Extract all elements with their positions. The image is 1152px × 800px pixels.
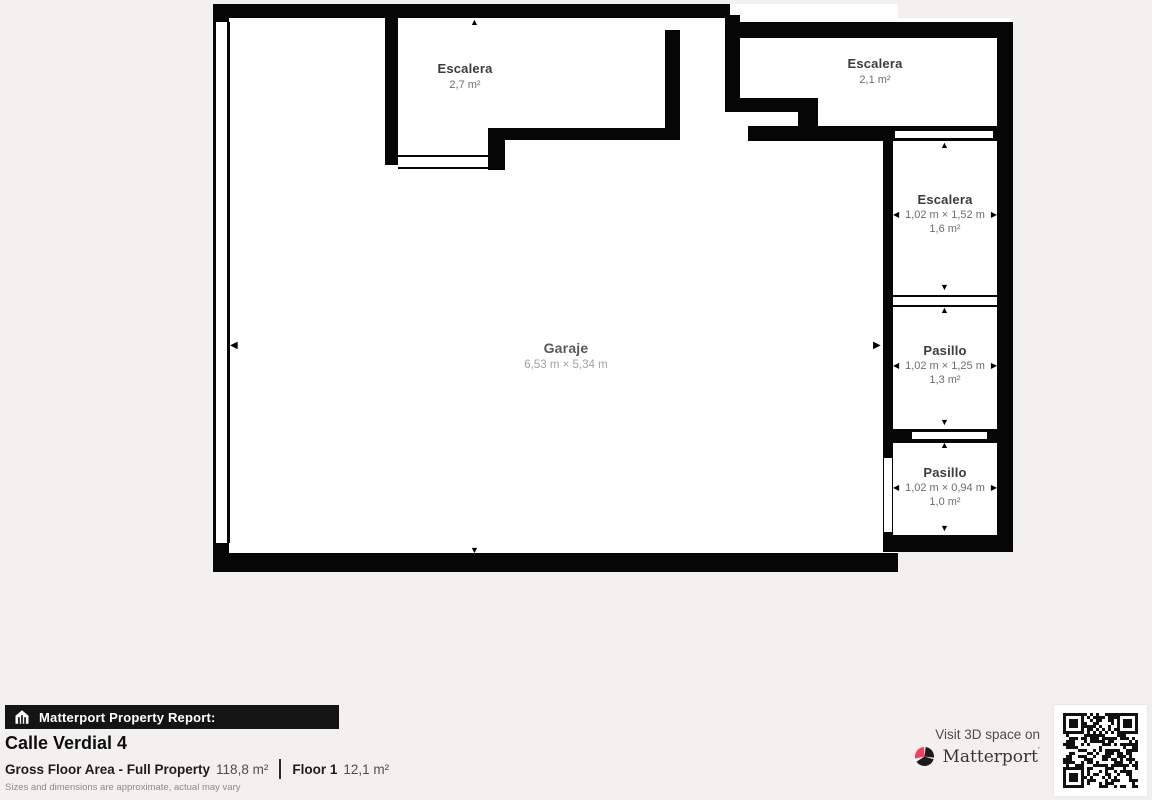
door-escalera-topleft <box>398 155 488 169</box>
room-dimensions-pasillo-bottom: ◀ 1,02 m × 0,94 m ▶ <box>893 481 997 495</box>
floor-value: 12,1 m² <box>343 762 389 777</box>
room-area-pasillo-middle: 1,3 m² <box>893 374 997 386</box>
wall-left-top-corner <box>213 4 229 22</box>
room-area: 1,0 m² <box>893 496 997 508</box>
report-header-bar: Matterport Property Report: <box>5 705 339 729</box>
room-area: 2,1 m² <box>795 74 955 86</box>
room-label-garaje: Garaje 6,53 m × 5,34 m <box>486 340 646 371</box>
room-dimensions: 6,53 m × 5,34 m <box>486 359 646 371</box>
floor-plan: Escalera 2,7 m² Escalera 2,1 m² Garaje 6… <box>0 0 1152 620</box>
dim-arrow-down-icon: ▼ <box>940 418 949 427</box>
room-dimensions: 1,02 m × 1,52 m <box>899 209 991 221</box>
matterport-brand: Matterport′ <box>860 746 1040 767</box>
wall-topright-h2 <box>748 126 893 141</box>
room-area-escalera-right: 1,6 m² <box>893 223 997 235</box>
wall-escalera-topleft-bottom <box>488 128 667 140</box>
dim-arrow-down-icon: ▼ <box>940 283 949 292</box>
gross-floor-area-value: 118,8 m² <box>216 762 268 777</box>
property-name: Calle Verdial 4 <box>5 733 127 754</box>
wall-escalera-topleft-right <box>665 30 680 140</box>
wall-bottom-main <box>213 553 898 572</box>
visit-3d-space-text: Visit 3D space on <box>860 727 1040 742</box>
room-dimensions-pasillo-middle: ◀ 1,02 m × 1,25 m ▶ <box>893 359 997 373</box>
room-name: Escalera <box>385 61 545 76</box>
room-label-escalera-top-left: Escalera 2,7 m² <box>385 61 545 91</box>
dim-arrow-up-icon: ▲ <box>940 141 949 150</box>
wall-top-left-section <box>213 4 730 18</box>
dim-arrow-up-icon: ▲ <box>470 18 479 27</box>
wall-top-right-section <box>728 22 1013 38</box>
room-dimensions-escalera-right: ◀ 1,02 m × 1,52 m ▶ <box>893 208 997 222</box>
matterport-wordmark: Matterport′ <box>942 747 1040 767</box>
room-label-escalera-top-right: Escalera 2,1 m² <box>795 56 955 86</box>
door-column-left <box>884 458 892 532</box>
dim-arrow-down-icon: ▼ <box>940 524 949 533</box>
room-name: Garaje <box>486 340 646 356</box>
dim-arrow-right-icon: ▶ <box>873 341 881 351</box>
room-name: Pasillo <box>893 465 997 480</box>
dim-arrow-up-icon: ▲ <box>940 306 949 315</box>
room-area-pasillo-bottom: 1,0 m² <box>893 496 997 508</box>
disclaimer-text: Sizes and dimensions are approximate, ac… <box>5 782 241 793</box>
door-divider-pasillo <box>912 432 987 439</box>
room-label-escalera-right: Escalera <box>893 192 997 207</box>
qr-code <box>1063 713 1138 788</box>
room-name: Escalera <box>893 192 997 207</box>
area-metrics: Gross Floor Area - Full Property 118,8 m… <box>5 758 389 780</box>
room-name: Escalera <box>795 56 955 71</box>
room-dimensions: 1,02 m × 0,94 m <box>899 482 991 494</box>
dim-arrow-right-icon: ▶ <box>991 484 997 492</box>
room-area: 1,6 m² <box>893 223 997 235</box>
page: { "plan": { "rooms": { "escalera_top_lef… <box>0 0 1152 800</box>
room-name: Pasillo <box>893 343 997 358</box>
wall-right-outer <box>997 22 1013 552</box>
room-area: 2,7 m² <box>385 79 545 91</box>
matterport-logo-icon <box>914 746 935 767</box>
window-left-wall <box>213 22 230 543</box>
wall-bottom-right-column <box>883 535 1013 552</box>
room-label-pasillo-bottom: Pasillo <box>893 465 997 480</box>
wall-escalera-topleft-left <box>385 18 398 165</box>
qr-card <box>1054 705 1147 796</box>
wall-left-bottom-corner <box>213 543 229 555</box>
room-area: 1,3 m² <box>893 374 997 386</box>
dim-arrow-left-icon: ◀ <box>230 341 238 351</box>
dim-arrow-up-icon: ▲ <box>940 441 949 450</box>
floor-label: Floor 1 <box>292 762 337 777</box>
room-dimensions: 1,02 m × 1,25 m <box>899 360 991 372</box>
dim-arrow-down-icon: ▼ <box>470 546 479 555</box>
metric-divider <box>279 759 281 779</box>
trademark-icon: ′ <box>1038 747 1040 757</box>
room-label-pasillo-middle: Pasillo <box>893 343 997 358</box>
door-column-top <box>895 131 993 138</box>
report-title: Matterport Property Report: <box>39 710 216 725</box>
dim-arrow-right-icon: ▶ <box>991 362 997 370</box>
dim-arrow-right-icon: ▶ <box>991 211 997 219</box>
gross-floor-area-label: Gross Floor Area - Full Property <box>5 762 210 777</box>
home-icon <box>14 709 30 725</box>
